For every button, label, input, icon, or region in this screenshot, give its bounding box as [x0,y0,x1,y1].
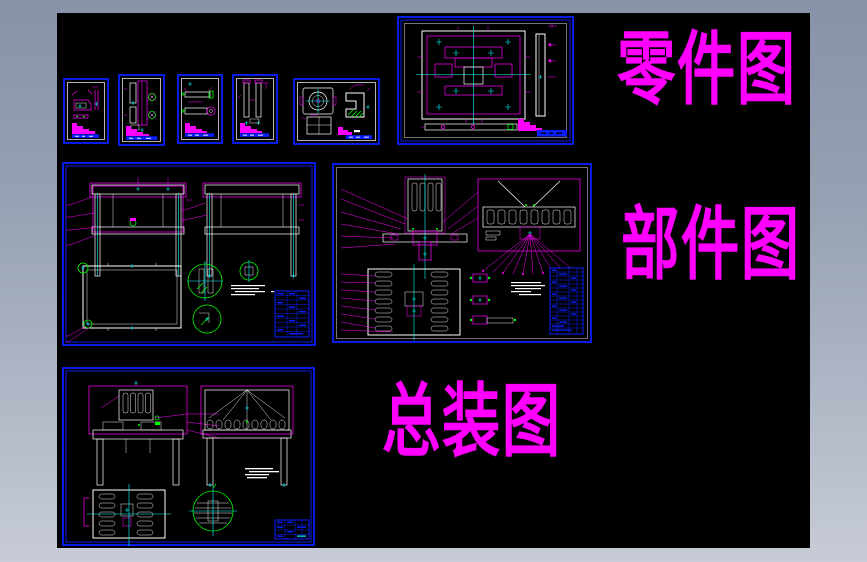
title-block [275,520,309,539]
components-section-label: 部件图 [621,204,801,288]
sheet-component-2[interactable] [333,164,591,342]
sheet-part-6-large[interactable] [398,17,573,144]
sheet-part-5[interactable] [294,79,379,144]
bom-table [550,268,583,334]
bom-table [271,291,309,337]
sheet-part-3[interactable] [178,75,222,143]
sheet-assembly[interactable] [63,368,314,546]
sheet-part-1[interactable] [64,79,108,143]
sheet-component-1[interactable] [63,163,315,345]
assembly-section-label: 总装图 [382,381,562,465]
parts-section-label: 零件图 [617,29,797,113]
sheet-part-4[interactable] [233,75,277,143]
sheet-part-2[interactable] [119,75,164,145]
cad-viewer-window: 零件图 部件图 总装图 [0,0,867,562]
